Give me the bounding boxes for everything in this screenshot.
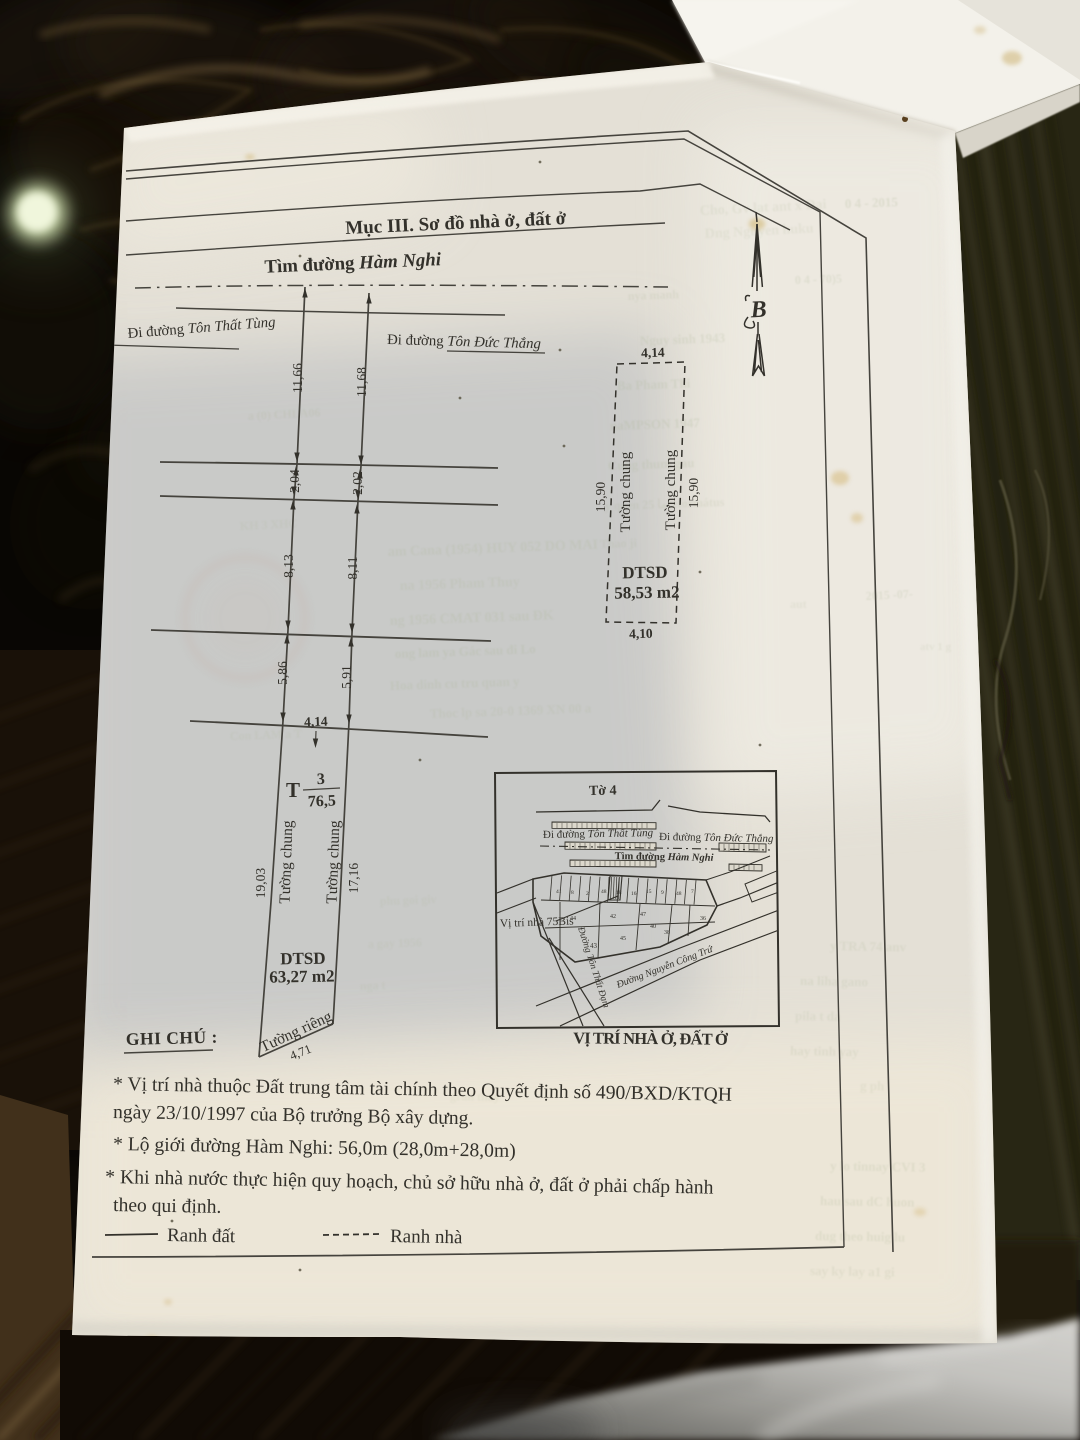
- svg-text:9: 9: [661, 890, 664, 896]
- svg-text:na liha gano: na liha gano: [800, 973, 868, 989]
- svg-text:DTSD: DTSD: [622, 563, 668, 583]
- svg-text:theo qui định.: theo qui định.: [113, 1195, 222, 1218]
- svg-text:18: 18: [616, 890, 622, 896]
- svg-text:naMPSON 1947: naMPSON 1947: [610, 415, 701, 433]
- svg-text:11,68: 11,68: [354, 367, 369, 397]
- svg-text:11,66: 11,66: [290, 363, 305, 393]
- svg-text:Tường chung: Tường chung: [618, 451, 634, 532]
- svg-text:17,16: 17,16: [346, 863, 361, 894]
- svg-text:a gay 1956: a gay 1956: [368, 935, 422, 951]
- svg-text:19,03: 19,03: [253, 868, 268, 899]
- svg-text:5,86: 5,86: [275, 661, 290, 685]
- svg-text:15,90: 15,90: [686, 478, 701, 509]
- svg-text:76,5: 76,5: [308, 793, 337, 811]
- svg-text:42: 42: [610, 914, 616, 920]
- svg-text:GHI CHÚ :: GHI CHÚ :: [126, 1027, 218, 1049]
- svg-text:nga t: nga t: [360, 978, 386, 993]
- svg-text:48: 48: [601, 889, 607, 895]
- svg-text:Tìm đường Hàm Nghi: Tìm đường Hàm Nghi: [615, 851, 714, 864]
- svg-text:T: T: [286, 778, 300, 802]
- svg-text:58,53 m2: 58,53 m2: [614, 582, 679, 602]
- svg-text:y TRA 74 anv: y TRA 74 anv: [830, 938, 907, 954]
- svg-text:15,90: 15,90: [593, 482, 608, 513]
- svg-text:Tường chung: Tường chung: [324, 820, 344, 904]
- svg-text:Tờ 4: Tờ 4: [589, 784, 617, 799]
- svg-text:15: 15: [646, 889, 652, 895]
- svg-text:g ph: g ph: [860, 1078, 885, 1093]
- svg-text:KH 3 XHC: KH 3 XHC: [239, 516, 297, 533]
- svg-text:38: 38: [664, 930, 670, 936]
- svg-text:atv 1 g: atv 1 g: [920, 641, 952, 653]
- svg-text:2: 2: [586, 891, 589, 897]
- svg-text:nya manh: nya manh: [628, 287, 680, 303]
- svg-text:47: 47: [640, 912, 646, 918]
- svg-text:8,13: 8,13: [281, 554, 296, 578]
- svg-text:7: 7: [691, 889, 694, 895]
- svg-text:pila t da: pila t da: [795, 1008, 841, 1024]
- svg-text:Tường chung: Tường chung: [277, 820, 297, 904]
- svg-text:8: 8: [571, 890, 574, 896]
- svg-text:0 4 - 70)5: 0 4 - 70)5: [795, 271, 842, 287]
- svg-text:Ba Pham Thi: Ba Pham Thi: [617, 375, 691, 393]
- svg-text:41: 41: [556, 889, 562, 895]
- svg-text:4,14: 4,14: [304, 714, 328, 730]
- svg-text:5,91: 5,91: [339, 665, 354, 689]
- svg-text:y lo tinnay CVI 3: y lo tinnay CVI 3: [830, 1158, 926, 1175]
- svg-text:36: 36: [700, 916, 706, 922]
- svg-text:B: B: [749, 297, 767, 324]
- svg-text:Ranh đất: Ranh đất: [167, 1225, 236, 1247]
- svg-text:hay tinh yay: hay tinh yay: [790, 1043, 859, 1059]
- svg-text:3: 3: [317, 771, 326, 788]
- svg-text:45: 45: [620, 936, 626, 942]
- svg-text:DTSD: DTSD: [280, 949, 326, 969]
- svg-text:Tường chung: Tường chung: [663, 449, 679, 530]
- svg-text:Đi đường Tôn Thất Tùng: Đi đường Tôn Thất Tùng: [543, 827, 654, 841]
- svg-text:4,10: 4,10: [629, 626, 653, 642]
- svg-text:0 4 - 2015: 0 4 - 2015: [845, 194, 899, 211]
- svg-text:8,11: 8,11: [345, 556, 360, 579]
- svg-text:VỊ TRÍ NHÀ Ở, ĐẤT Ở: VỊ TRÍ NHÀ Ở, ĐẤT Ở: [573, 1028, 729, 1048]
- svg-text:dug theo huig lu: dug theo huig lu: [815, 1228, 905, 1245]
- svg-text:48: 48: [676, 891, 682, 897]
- svg-text:2,02: 2,02: [350, 471, 365, 495]
- svg-text:say ky lay a1 gi: say ky lay a1 gi: [810, 1263, 895, 1279]
- svg-text:Đi đường Tôn Đức Thắng: Đi đường Tôn Đức Thắng: [659, 831, 774, 845]
- svg-text:16: 16: [631, 891, 637, 897]
- svg-text:Thao ji: Thao ji: [600, 536, 638, 551]
- svg-text:Con LAM a T: Con LAM a T: [230, 726, 303, 743]
- svg-text:2,04: 2,04: [287, 469, 302, 493]
- svg-text:4,14: 4,14: [641, 345, 665, 361]
- svg-text:2015 -07-: 2015 -07-: [865, 587, 913, 603]
- svg-text:aut: aut: [790, 597, 807, 611]
- svg-text:63,27 m2: 63,27 m2: [269, 966, 334, 986]
- svg-text:Ranh nhà: Ranh nhà: [390, 1226, 463, 1248]
- svg-text:phu goi giv: phu goi giv: [380, 892, 437, 908]
- svg-text:40: 40: [650, 924, 656, 930]
- svg-text:hau sau dC huon: hau sau dC huon: [820, 1193, 915, 1210]
